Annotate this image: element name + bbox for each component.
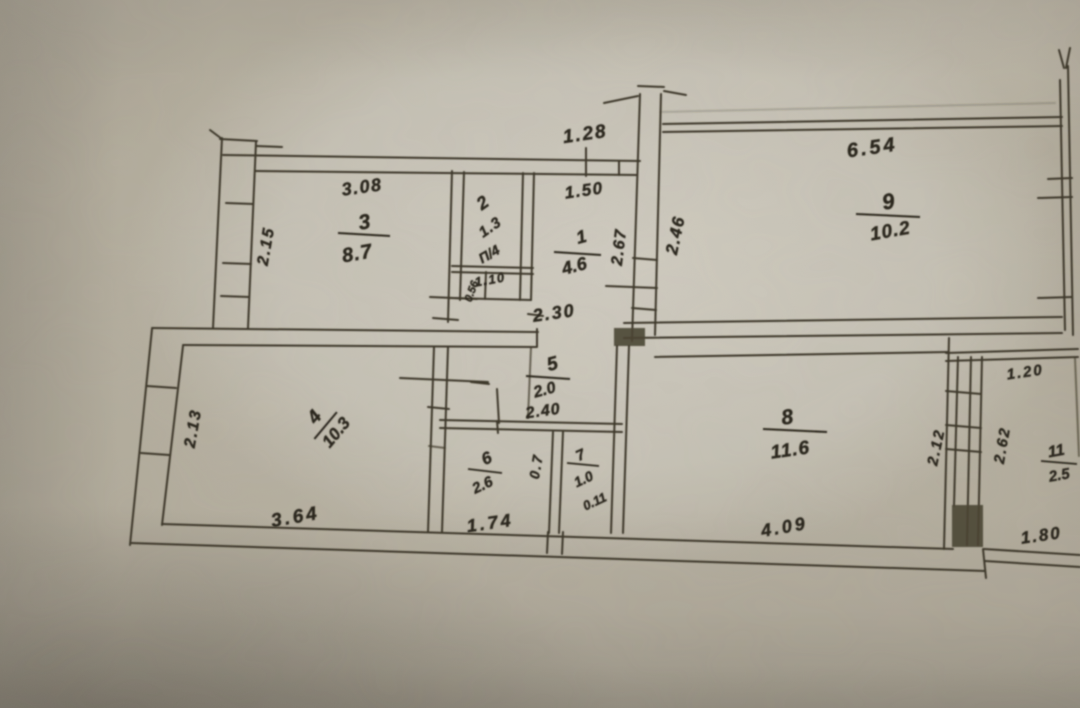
svg-text:11: 11 [1047,442,1066,462]
